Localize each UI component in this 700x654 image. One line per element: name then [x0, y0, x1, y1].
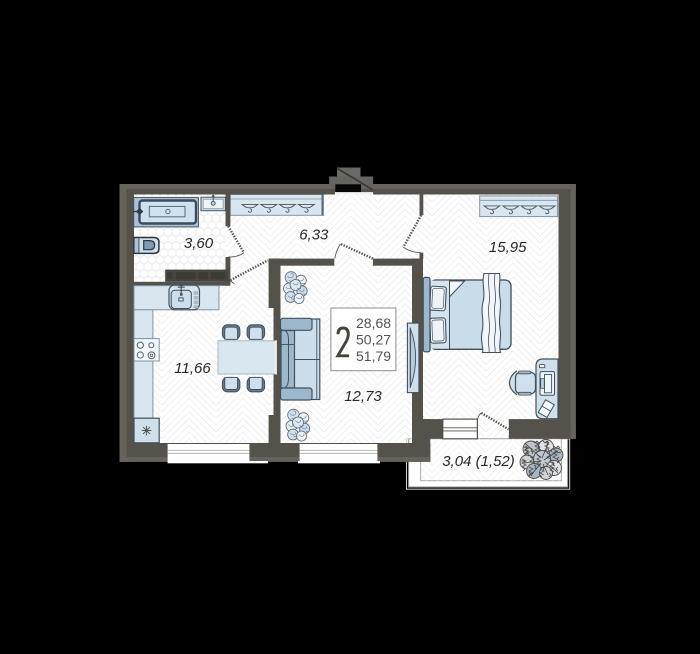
svg-text:6,33: 6,33	[299, 226, 329, 243]
svg-text:50,27: 50,27	[356, 331, 391, 347]
svg-text:15,95: 15,95	[489, 239, 527, 256]
svg-text:3,60: 3,60	[184, 235, 214, 252]
svg-text:51,79: 51,79	[356, 348, 391, 364]
svg-text:3,04 (1,52): 3,04 (1,52)	[442, 453, 515, 470]
svg-text:28,68: 28,68	[356, 315, 391, 331]
svg-text:12,73: 12,73	[344, 388, 382, 405]
svg-text:11,66: 11,66	[174, 360, 211, 377]
